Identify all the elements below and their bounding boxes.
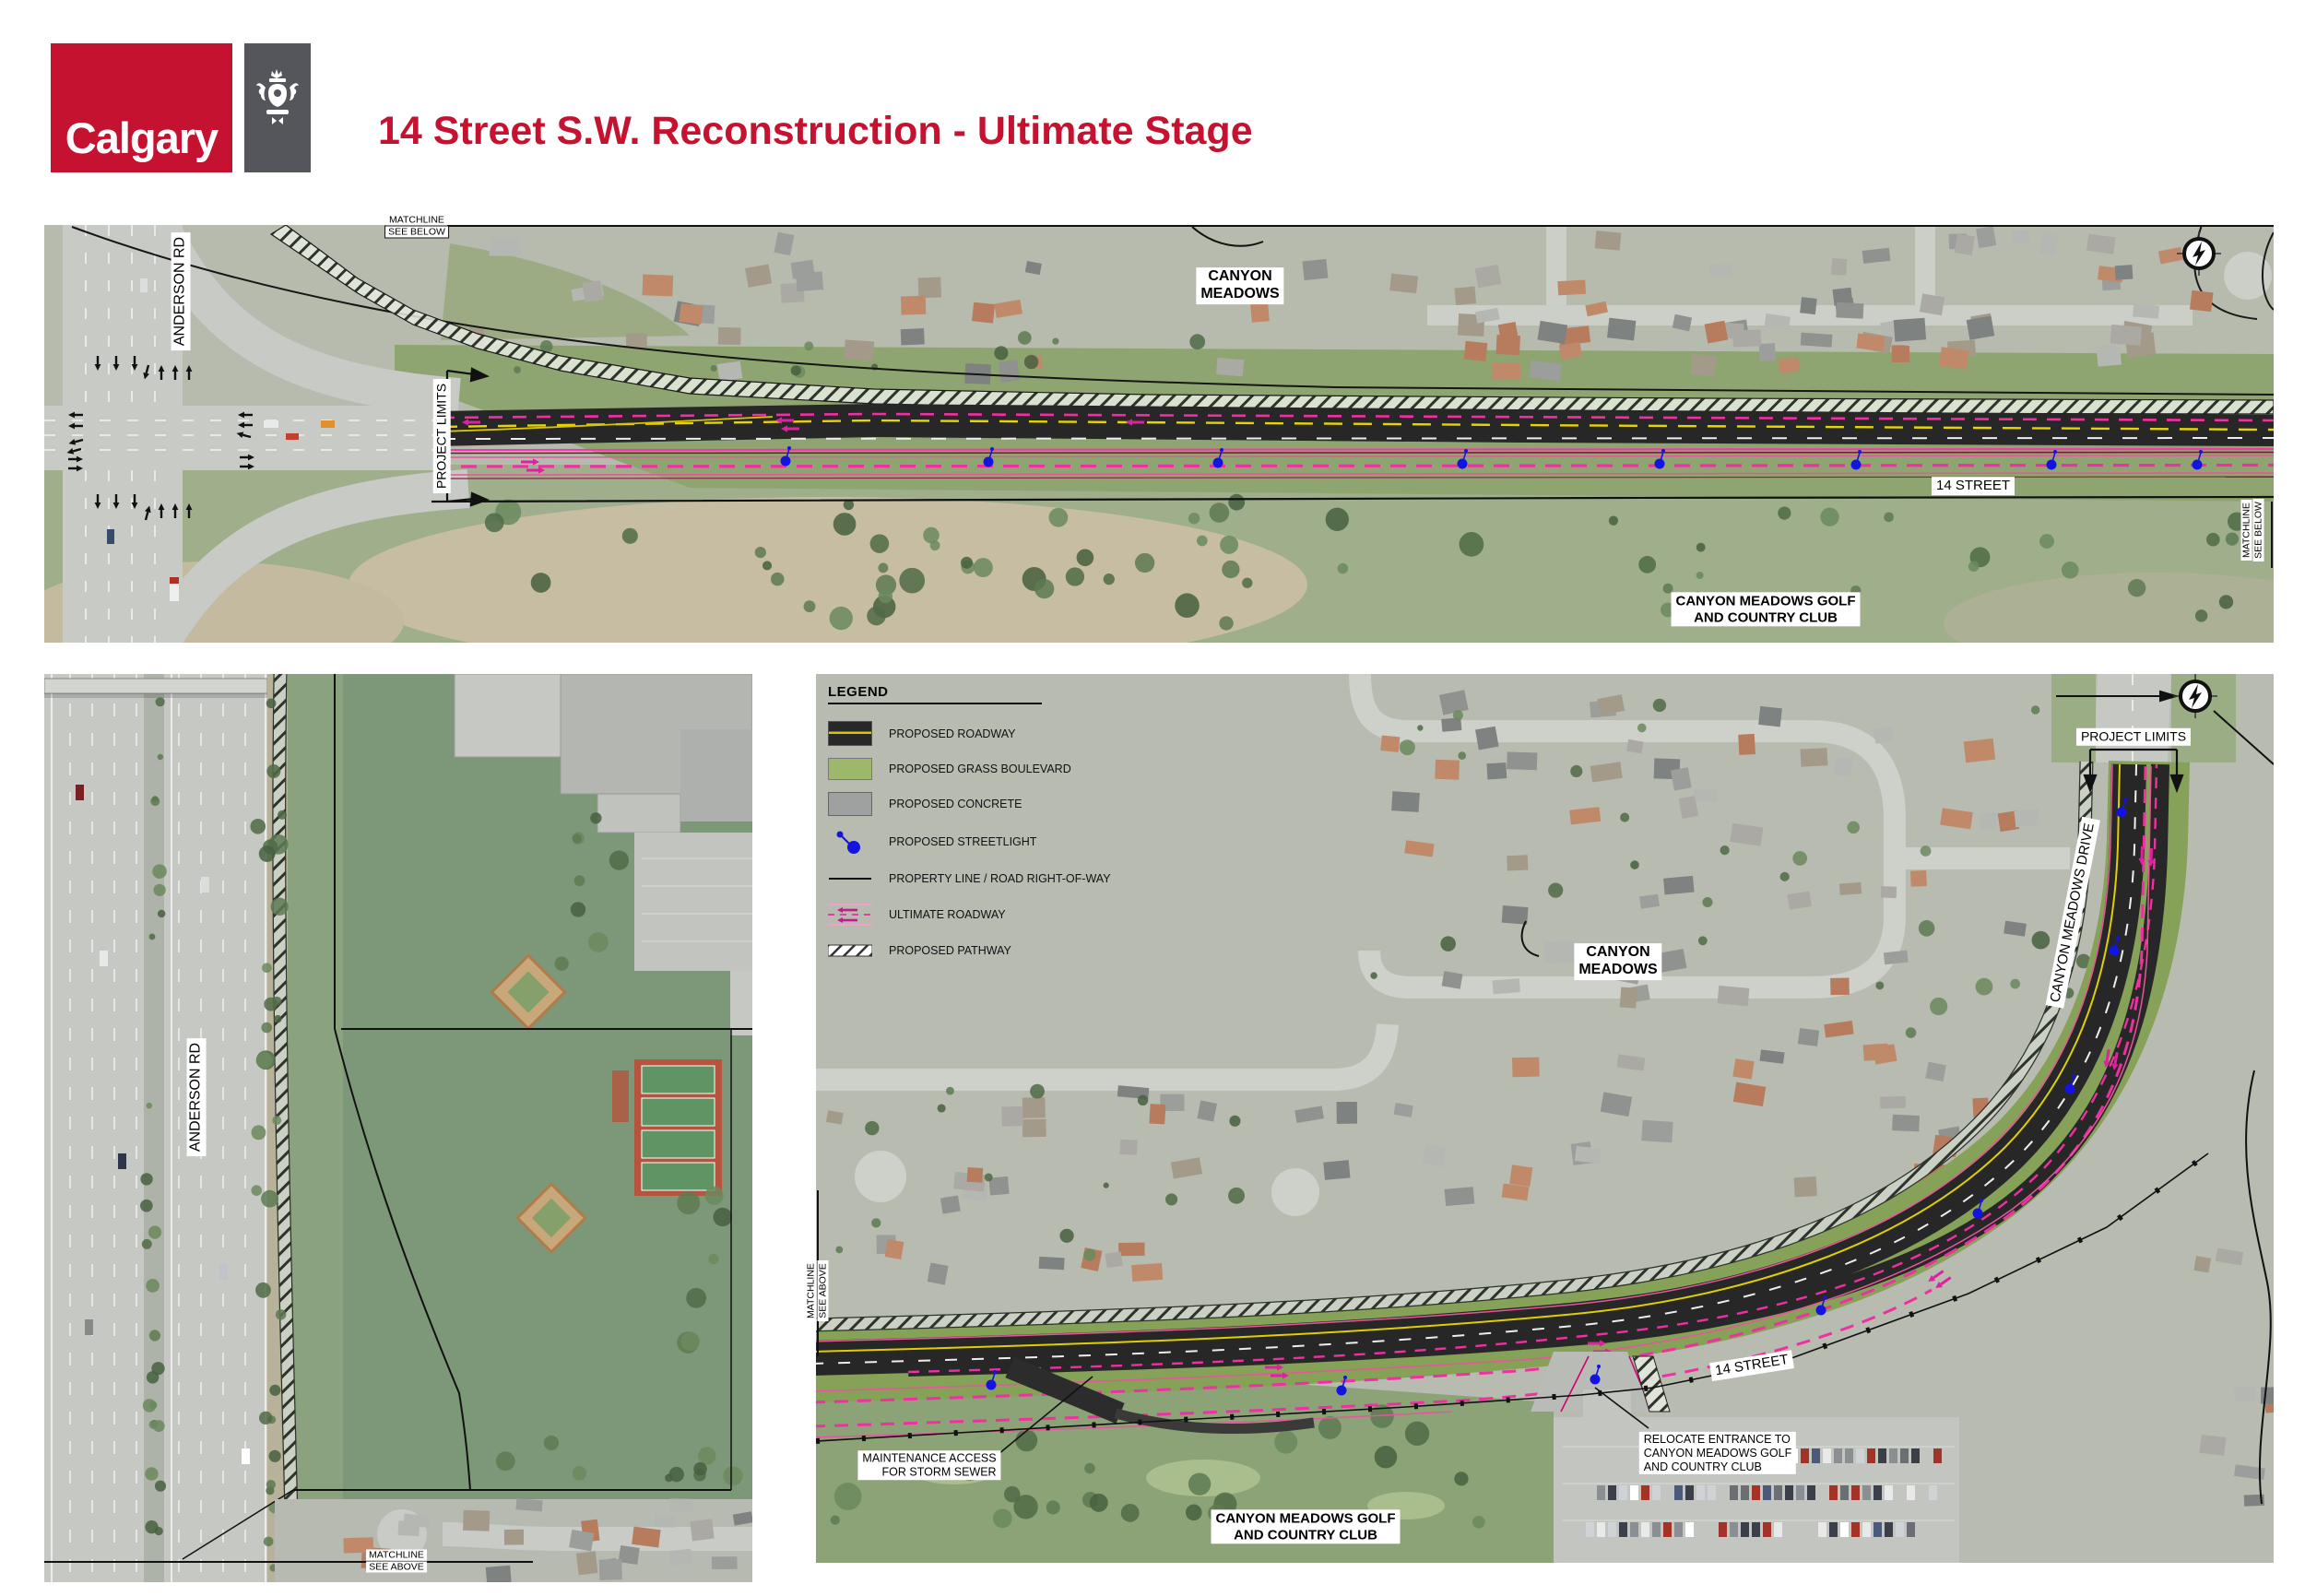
- legend-item-label: PROPOSED CONCRETE: [889, 798, 1022, 810]
- streetlight-swatch-icon: [828, 828, 872, 856]
- legend-item-label: ULTIMATE ROADWAY: [889, 908, 1006, 921]
- grass-swatch-icon: [828, 758, 872, 780]
- canyon-meadows-label-bottom: CANYONMEADOWS: [1574, 943, 1661, 980]
- legend-item-property: PROPERTY LINE / ROAD RIGHT-OF-WAY: [828, 868, 1058, 890]
- maintenance-access-label: MAINTENANCE ACCESSFOR STORM SEWER: [857, 1450, 1000, 1480]
- calgary-logo: Calgary: [51, 43, 311, 172]
- legend-item-label: PROPOSED GRASS BOULEVARD: [889, 763, 1071, 775]
- project-limits-label-bottom: PROJECT LIMITS: [2076, 728, 2191, 746]
- legend: LEGEND PROPOSED ROADWAYPROPOSED GRASS BO…: [828, 684, 1058, 974]
- roadway-swatch-icon: [828, 721, 872, 746]
- plan-sheet: Calgary 14 Street S.W. Reconstruction - …: [0, 0, 2305, 1596]
- legend-item-streetlight: PROPOSED STREETLIGHT: [828, 828, 1058, 856]
- anderson-rd-label-top: ANDERSON RD: [171, 232, 191, 350]
- ultimate-swatch-icon: [828, 902, 872, 928]
- anderson-road-highway: [44, 674, 267, 1582]
- legend-item-label: PROPOSED STREETLIGHT: [889, 835, 1036, 848]
- legend-title: LEGEND: [828, 684, 1058, 700]
- map-panel-top: [44, 225, 2274, 643]
- matchline-label-bottom-left: MATCHLINE SEE ABOVE: [366, 1549, 427, 1574]
- project-limits-label-top: PROJECT LIMITS: [433, 379, 451, 493]
- concrete-swatch-icon: [828, 792, 872, 816]
- legend-item-concrete: PROPOSED CONCRETE: [828, 792, 1058, 816]
- golf-club-label-top: CANYON MEADOWS GOLFAND COUNTRY CLUB: [1672, 592, 1861, 626]
- logo-text: Calgary: [65, 112, 218, 163]
- matchline-label-top-right: MATCHLINE SEE BELOW: [2240, 499, 2265, 562]
- legend-item-label: PROPERTY LINE / ROAD RIGHT-OF-WAY: [889, 872, 1111, 885]
- pathway-swatch-icon: [828, 944, 872, 957]
- map-panel-bottom-left: [44, 674, 752, 1582]
- matchline-label-bottom-right: MATCHLINE SEE ABOVE: [805, 1260, 830, 1321]
- canyon-meadows-label-top: CANYONMEADOWS: [1196, 267, 1283, 304]
- legend-item-grass: PROPOSED GRASS BOULEVARD: [828, 758, 1058, 780]
- golf-club-label-bottom: CANYON MEADOWS GOLFAND COUNTRY CLUB: [1212, 1509, 1401, 1543]
- legend-item-pathway: PROPOSED PATHWAY: [828, 940, 1058, 962]
- calgary-wordmark: Calgary: [51, 43, 232, 172]
- matchline-label-top: MATCHLINE SEE BELOW: [385, 214, 448, 239]
- property-swatch-icon: [828, 874, 872, 883]
- 14-street-label-top: 14 STREET: [1932, 477, 2015, 495]
- legend-item-label: PROPOSED ROADWAY: [889, 727, 1016, 740]
- calgary-crest-icon: [244, 43, 311, 172]
- relocate-entrance-label: RELOCATE ENTRANCE TO CANYON MEADOWS GOLF…: [1639, 1432, 1796, 1474]
- legend-rule: [828, 703, 1042, 704]
- page-title: 14 Street S.W. Reconstruction - Ultimate…: [378, 109, 1253, 154]
- anderson-rd-label-bottom: ANDERSON RD: [187, 1038, 207, 1156]
- legend-item-roadway: PROPOSED ROADWAY: [828, 721, 1058, 746]
- legend-item-label: PROPOSED PATHWAY: [889, 944, 1011, 957]
- legend-item-ultimate: ULTIMATE ROADWAY: [828, 902, 1058, 928]
